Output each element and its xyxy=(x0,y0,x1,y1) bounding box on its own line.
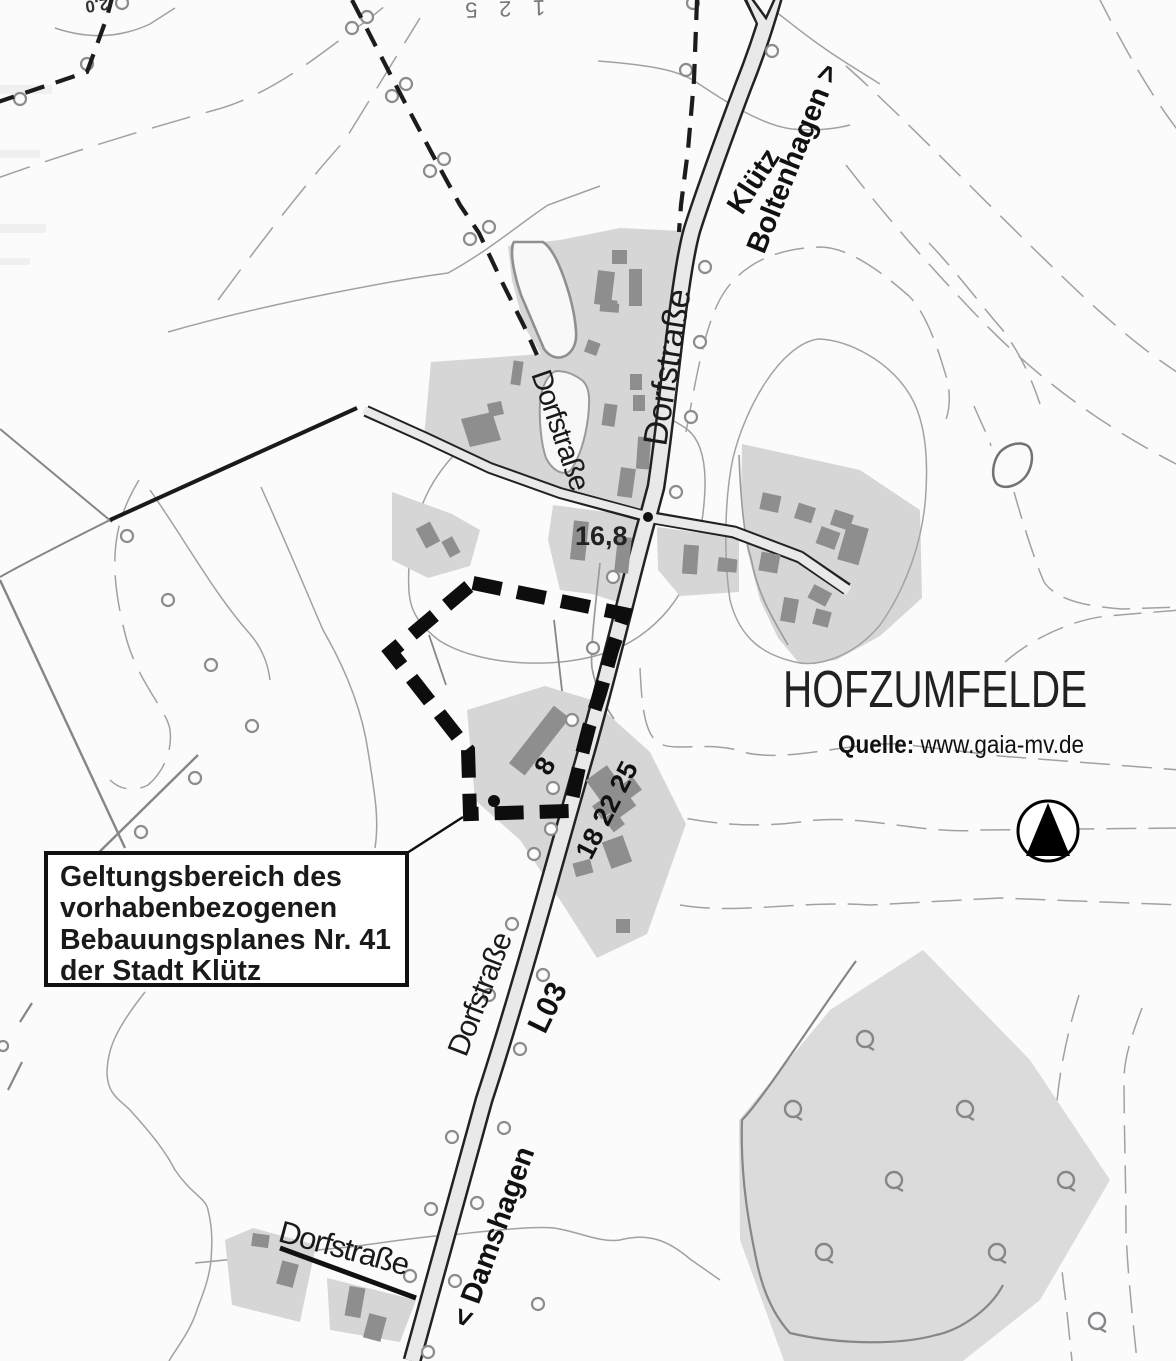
svg-text:125: 125 xyxy=(465,0,546,23)
svg-text:der Stadt Klütz: der Stadt Klütz xyxy=(60,955,261,987)
svg-text:2,0: 2,0 xyxy=(84,0,110,16)
svg-text:16,8: 16,8 xyxy=(575,521,628,551)
svg-text:Quelle: www.gaia-mv.de: Quelle: www.gaia-mv.de xyxy=(838,731,1084,759)
svg-text:vorhabenbezogenen: vorhabenbezogenen xyxy=(60,892,337,924)
svg-text:HOFZUMFELDE: HOFZUMFELDE xyxy=(783,660,1087,718)
svg-text:Geltungsbereich des: Geltungsbereich des xyxy=(60,861,342,893)
svg-text:Bebauungsplanes Nr. 41: Bebauungsplanes Nr. 41 xyxy=(60,924,391,956)
